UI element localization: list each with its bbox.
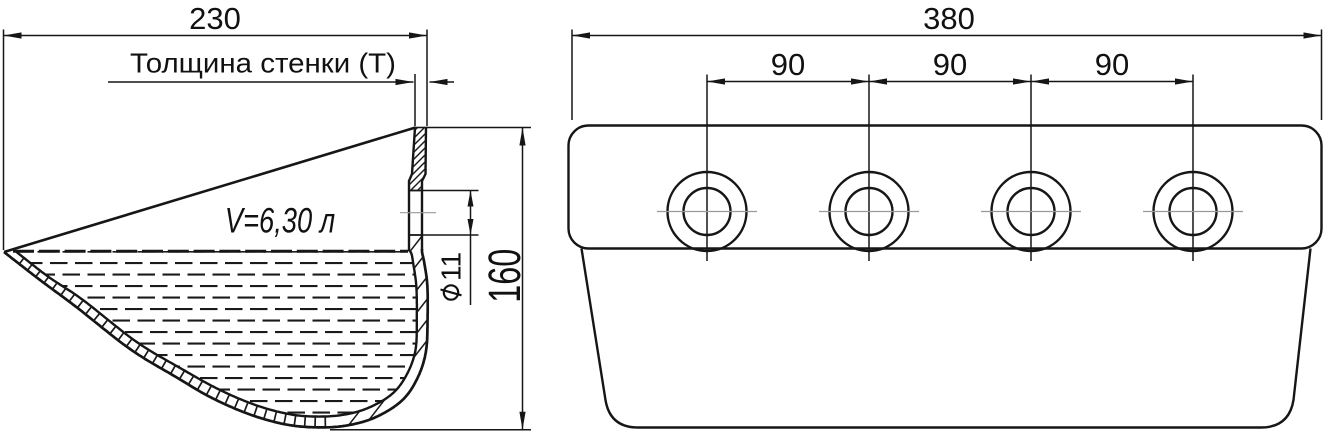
svg-text:90: 90	[1095, 47, 1129, 82]
svg-text:380: 380	[923, 1, 975, 36]
svg-text:230: 230	[189, 1, 241, 36]
svg-text:Толщина стенки (Т): Толщина стенки (Т)	[130, 48, 396, 79]
svg-text:160: 160	[481, 249, 530, 303]
svg-text:90: 90	[933, 47, 967, 82]
svg-text:90: 90	[771, 47, 805, 82]
svg-text:11: 11	[435, 252, 466, 281]
svg-text:V=6,30 л: V=6,30 л	[225, 201, 335, 240]
